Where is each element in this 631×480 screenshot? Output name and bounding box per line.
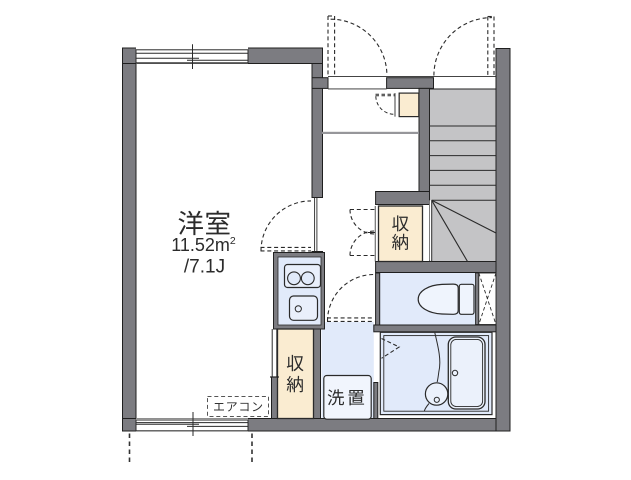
svg-text:/7.1J: /7.1J — [184, 256, 225, 277]
svg-text:11.52m2: 11.52m2 — [171, 235, 236, 255]
